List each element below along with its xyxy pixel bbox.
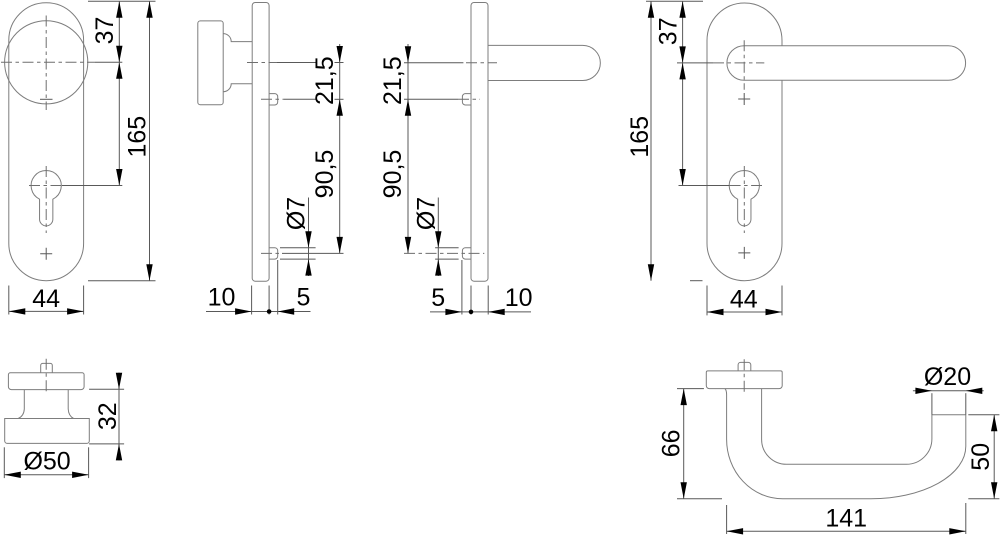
svg-text:10: 10 xyxy=(208,284,236,312)
svg-text:90,5: 90,5 xyxy=(311,150,339,199)
svg-text:5: 5 xyxy=(296,284,310,312)
svg-text:21,5: 21,5 xyxy=(311,56,339,105)
svg-text:Ø7: Ø7 xyxy=(412,197,440,230)
svg-text:50: 50 xyxy=(967,443,995,471)
svg-text:Ø7: Ø7 xyxy=(282,197,310,230)
svg-text:66: 66 xyxy=(657,429,685,457)
svg-text:141: 141 xyxy=(825,505,867,533)
svg-text:165: 165 xyxy=(626,116,654,158)
svg-text:Ø50: Ø50 xyxy=(23,447,70,475)
svg-text:165: 165 xyxy=(123,116,151,158)
svg-text:37: 37 xyxy=(91,17,119,45)
svg-text:32: 32 xyxy=(94,402,122,430)
svg-text:21,5: 21,5 xyxy=(379,56,407,105)
svg-text:90,5: 90,5 xyxy=(379,150,407,199)
svg-text:44: 44 xyxy=(32,285,60,313)
svg-text:44: 44 xyxy=(730,285,758,313)
svg-text:37: 37 xyxy=(654,17,682,45)
svg-text:Ø20: Ø20 xyxy=(924,363,971,391)
svg-text:5: 5 xyxy=(431,284,445,312)
svg-text:10: 10 xyxy=(505,284,533,312)
